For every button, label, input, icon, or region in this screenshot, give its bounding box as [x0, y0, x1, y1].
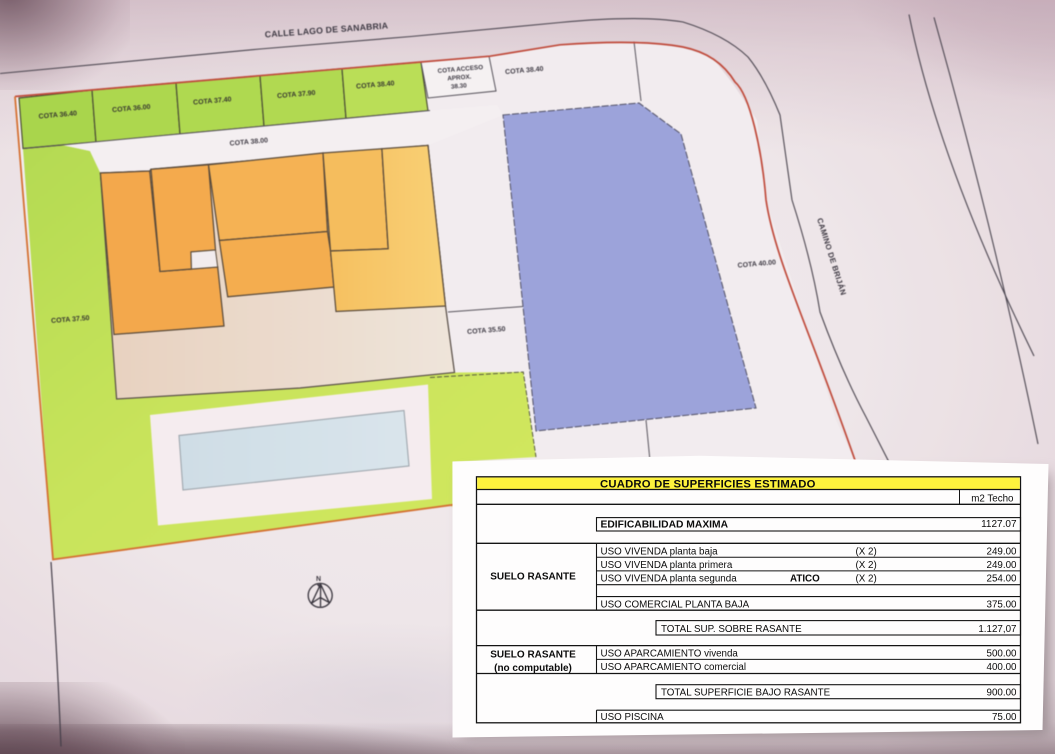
svg-text:CUADRO DE SUPERFICIES ESTIMADO: CUADRO DE SUPERFICIES ESTIMADO — [600, 478, 816, 490]
svg-text:1.127,07: 1.127,07 — [978, 624, 1016, 635]
svg-text:USO PISCINA: USO PISCINA — [601, 712, 665, 723]
svg-text:EDIFICABILIDAD MAXIMA: EDIFICABILIDAD MAXIMA — [601, 519, 729, 530]
svg-text:SUELO RASANTE: SUELO RASANTE — [490, 649, 576, 660]
svg-text:500.00: 500.00 — [987, 649, 1018, 660]
svg-text:249.00: 249.00 — [987, 546, 1018, 557]
svg-text:254.00: 254.00 — [987, 574, 1018, 585]
svg-text:TOTAL SUPERFICIE BAJO RASANTE: TOTAL SUPERFICIE BAJO RASANTE — [661, 688, 831, 699]
svg-text:(X 2): (X 2) — [856, 574, 877, 585]
svg-text:TOTAL SUP. SOBRE RASANTE: TOTAL SUP. SOBRE RASANTE — [661, 624, 802, 635]
svg-text:SUELO RASANTE: SUELO RASANTE — [490, 572, 576, 583]
svg-text:900.00: 900.00 — [987, 688, 1018, 699]
svg-text:375.00: 375.00 — [987, 599, 1018, 610]
svg-text:ATICO: ATICO — [790, 573, 820, 584]
svg-text:USO VIVENDA planta segunda: USO VIVENDA planta segunda — [601, 574, 738, 585]
svg-text:(X 2): (X 2) — [856, 546, 877, 557]
svg-text:USO COMERCIAL PLANTA BAJA: USO COMERCIAL PLANTA BAJA — [601, 599, 750, 610]
svg-text:400.00: 400.00 — [987, 662, 1018, 673]
svg-text:USO VIVENDA planta primera: USO VIVENDA planta primera — [601, 560, 733, 571]
svg-text:USO APARCAMIENTO comercial: USO APARCAMIENTO comercial — [601, 662, 747, 673]
svg-text:USO APARCAMIENTO vivenda: USO APARCAMIENTO vivenda — [601, 649, 739, 660]
svg-text:(X 2): (X 2) — [856, 560, 877, 571]
svg-text:m2 Techo: m2 Techo — [971, 494, 1014, 505]
svg-text:75.00: 75.00 — [992, 712, 1017, 723]
svg-text:(no computable): (no computable) — [494, 663, 572, 674]
svg-text:1127.07: 1127.07 — [981, 519, 1017, 530]
svg-text:USO VIVENDA planta baja: USO VIVENDA planta baja — [601, 546, 719, 557]
svg-text:249.00: 249.00 — [987, 560, 1018, 571]
